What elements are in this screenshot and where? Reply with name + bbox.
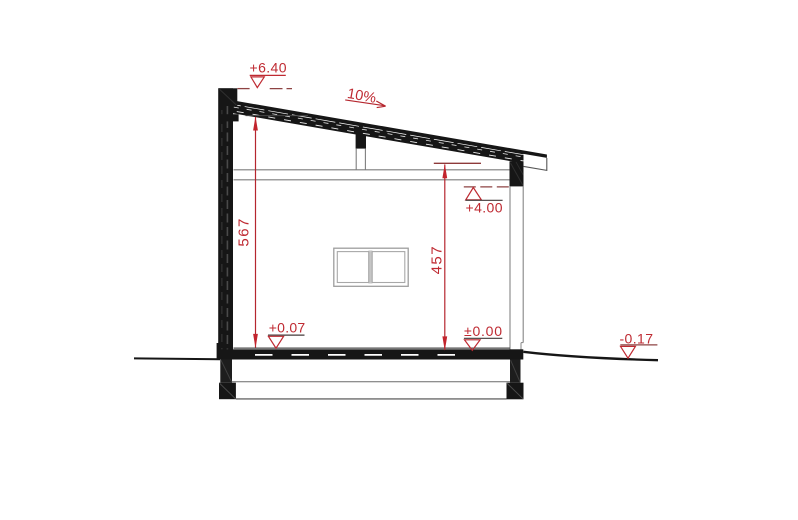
svg-text:+6.40: +6.40 xyxy=(250,59,287,75)
svg-text:-0.17: -0.17 xyxy=(620,331,654,347)
svg-text:+4.00: +4.00 xyxy=(466,200,503,216)
svg-text:±0.00: ±0.00 xyxy=(464,323,502,339)
svg-text:567: 567 xyxy=(236,219,253,247)
svg-text:+0.07: +0.07 xyxy=(269,320,306,336)
svg-text:457: 457 xyxy=(428,246,445,274)
